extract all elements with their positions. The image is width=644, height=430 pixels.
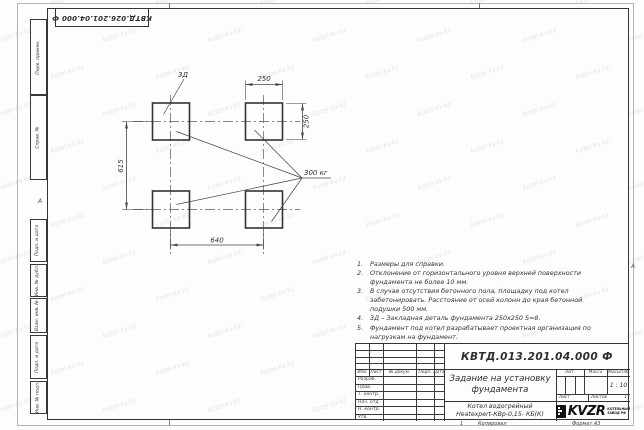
centerlines — [133, 95, 300, 256]
tb-title-line1: Задание на установку — [449, 374, 550, 385]
dim-label-250-right: 250 — [303, 114, 311, 128]
dimension-lines — [122, 79, 331, 250]
note-item: Фундамент под котел разрабатывает проект… — [356, 324, 598, 342]
tb-col-list: Лист — [369, 369, 383, 376]
tb-mass-label: Масса — [584, 369, 607, 376]
margin-box-podp-data-2: Подп. и дата — [30, 335, 47, 379]
fold-mark-number: 1 — [460, 421, 463, 427]
tb-product-name: Котел водогрейный Heatexpert-КВр-0,15- К… — [444, 401, 556, 421]
tb-scale-label: Масштаб — [607, 369, 630, 376]
blueprint-page: kotel-kv.kzkotel-kv.kzkotel-kv.kzkotel-k… — [0, 0, 644, 430]
tb-col-podp: Подп. — [416, 369, 434, 376]
zone-marker-left: А — [38, 198, 42, 205]
dim-label-250-top: 250 — [257, 75, 271, 83]
notes-block: Размеры для справки. Отклонение от гориз… — [356, 260, 598, 342]
tb-row-tkontr: Т. контр. — [356, 391, 383, 399]
top-designation-stamp: КВТД.026.201.04.000 Ф — [55, 8, 149, 27]
tb-product-line1: Котел водогрейный — [468, 403, 533, 411]
margin-label: Взам. инв. № — [36, 300, 41, 331]
margin-label: Инв. № дубл. — [36, 265, 41, 296]
margin-box-podp-data-1: Подп. и дата — [30, 219, 47, 262]
margin-box-inv-podl: Инв. № подл. — [30, 381, 47, 414]
margin-label: Подп. и дата — [36, 225, 41, 256]
note-item: Отклонение от горизонтального уровня вер… — [356, 269, 598, 287]
tb-row-razrab: Разраб. — [356, 376, 383, 384]
note-item: В случае отсутствия бетонного пола, площ… — [356, 287, 598, 313]
tb-col-doc: № докум. — [383, 369, 416, 376]
kvzr-logo-caption: КОТЕЛЬНЫЙ ЗАВОД РФ — [607, 407, 630, 415]
tb-col-data: Дата — [434, 369, 444, 376]
kvzr-caption-line2: ЗАВОД РФ — [607, 411, 626, 415]
zone-marker-right: А — [631, 263, 635, 270]
tb-scale-value: 1 : 10 — [607, 376, 630, 394]
tb-sheets-label: Листов — [591, 395, 607, 400]
tb-product-line2: Heatexpert-КВр-0,15- КБ(К) — [456, 411, 544, 419]
margin-box-perv-primen: Перв. примен. — [30, 19, 47, 95]
tb-company-cell: KVZR КОТЕЛЬНЫЙ ЗАВОД РФ — [556, 401, 630, 421]
tb-row-nkontr: Н. контр. — [356, 406, 383, 414]
dim-label-640: 640 — [210, 237, 224, 245]
tb-col-izm: Изм. — [356, 369, 369, 376]
note-item: 3Д – Закладная деталь фундамента 250х250… — [356, 314, 598, 323]
tb-row-nachotd: Нач. отд. — [356, 399, 383, 407]
margin-box-sprav-no: Справ. № — [30, 95, 47, 180]
tb-sheet-label: Лист — [559, 395, 570, 400]
margin-box-vzam-inv: Взам. инв. № — [30, 298, 47, 333]
margin-label: Перв. примен. — [36, 40, 41, 75]
title-block: Изм. Лист № докум. Подп. Дата Разраб. Пр… — [355, 343, 629, 420]
dim-label-615: 615 — [117, 159, 125, 173]
tb-sheets-cell: Листов 1 — [588, 394, 630, 401]
margin-label: Инв. № подл. — [36, 382, 41, 414]
tb-document-title: Задание на установку фундамента — [444, 369, 556, 401]
notes-list: Размеры для справки. Отклонение от гориз… — [356, 260, 598, 341]
tb-row-prov: Пров. — [356, 384, 383, 392]
margin-label: Подп. и дата — [36, 341, 41, 372]
margin-box-inv-dubl: Инв. № дубл. — [30, 264, 47, 297]
load-label-300kg: 300 кг — [304, 169, 328, 177]
tb-title-line2: фундамента — [472, 385, 529, 396]
kvzr-logo-text: KVZR — [568, 404, 606, 419]
note-item: Размеры для справки. — [356, 260, 598, 269]
copied-label: Копировал — [478, 421, 507, 427]
format-label: Формат А3 — [572, 421, 600, 427]
tb-sheet-cell: Лист — [556, 394, 588, 401]
tb-lit-label: Лит. — [556, 369, 584, 376]
detail-label-3d: 3Д — [178, 71, 188, 79]
kvzr-logo-icon — [556, 405, 566, 418]
tb-row-utv: Утв. — [356, 414, 383, 422]
margin-label: Справ. № — [36, 126, 41, 148]
top-designation-text: КВТД.026.201.04.000 Ф — [52, 14, 152, 22]
tb-sheets-value: 1 — [624, 395, 627, 400]
tb-designation: КВТД.013.201.04.000 Ф — [444, 344, 630, 369]
